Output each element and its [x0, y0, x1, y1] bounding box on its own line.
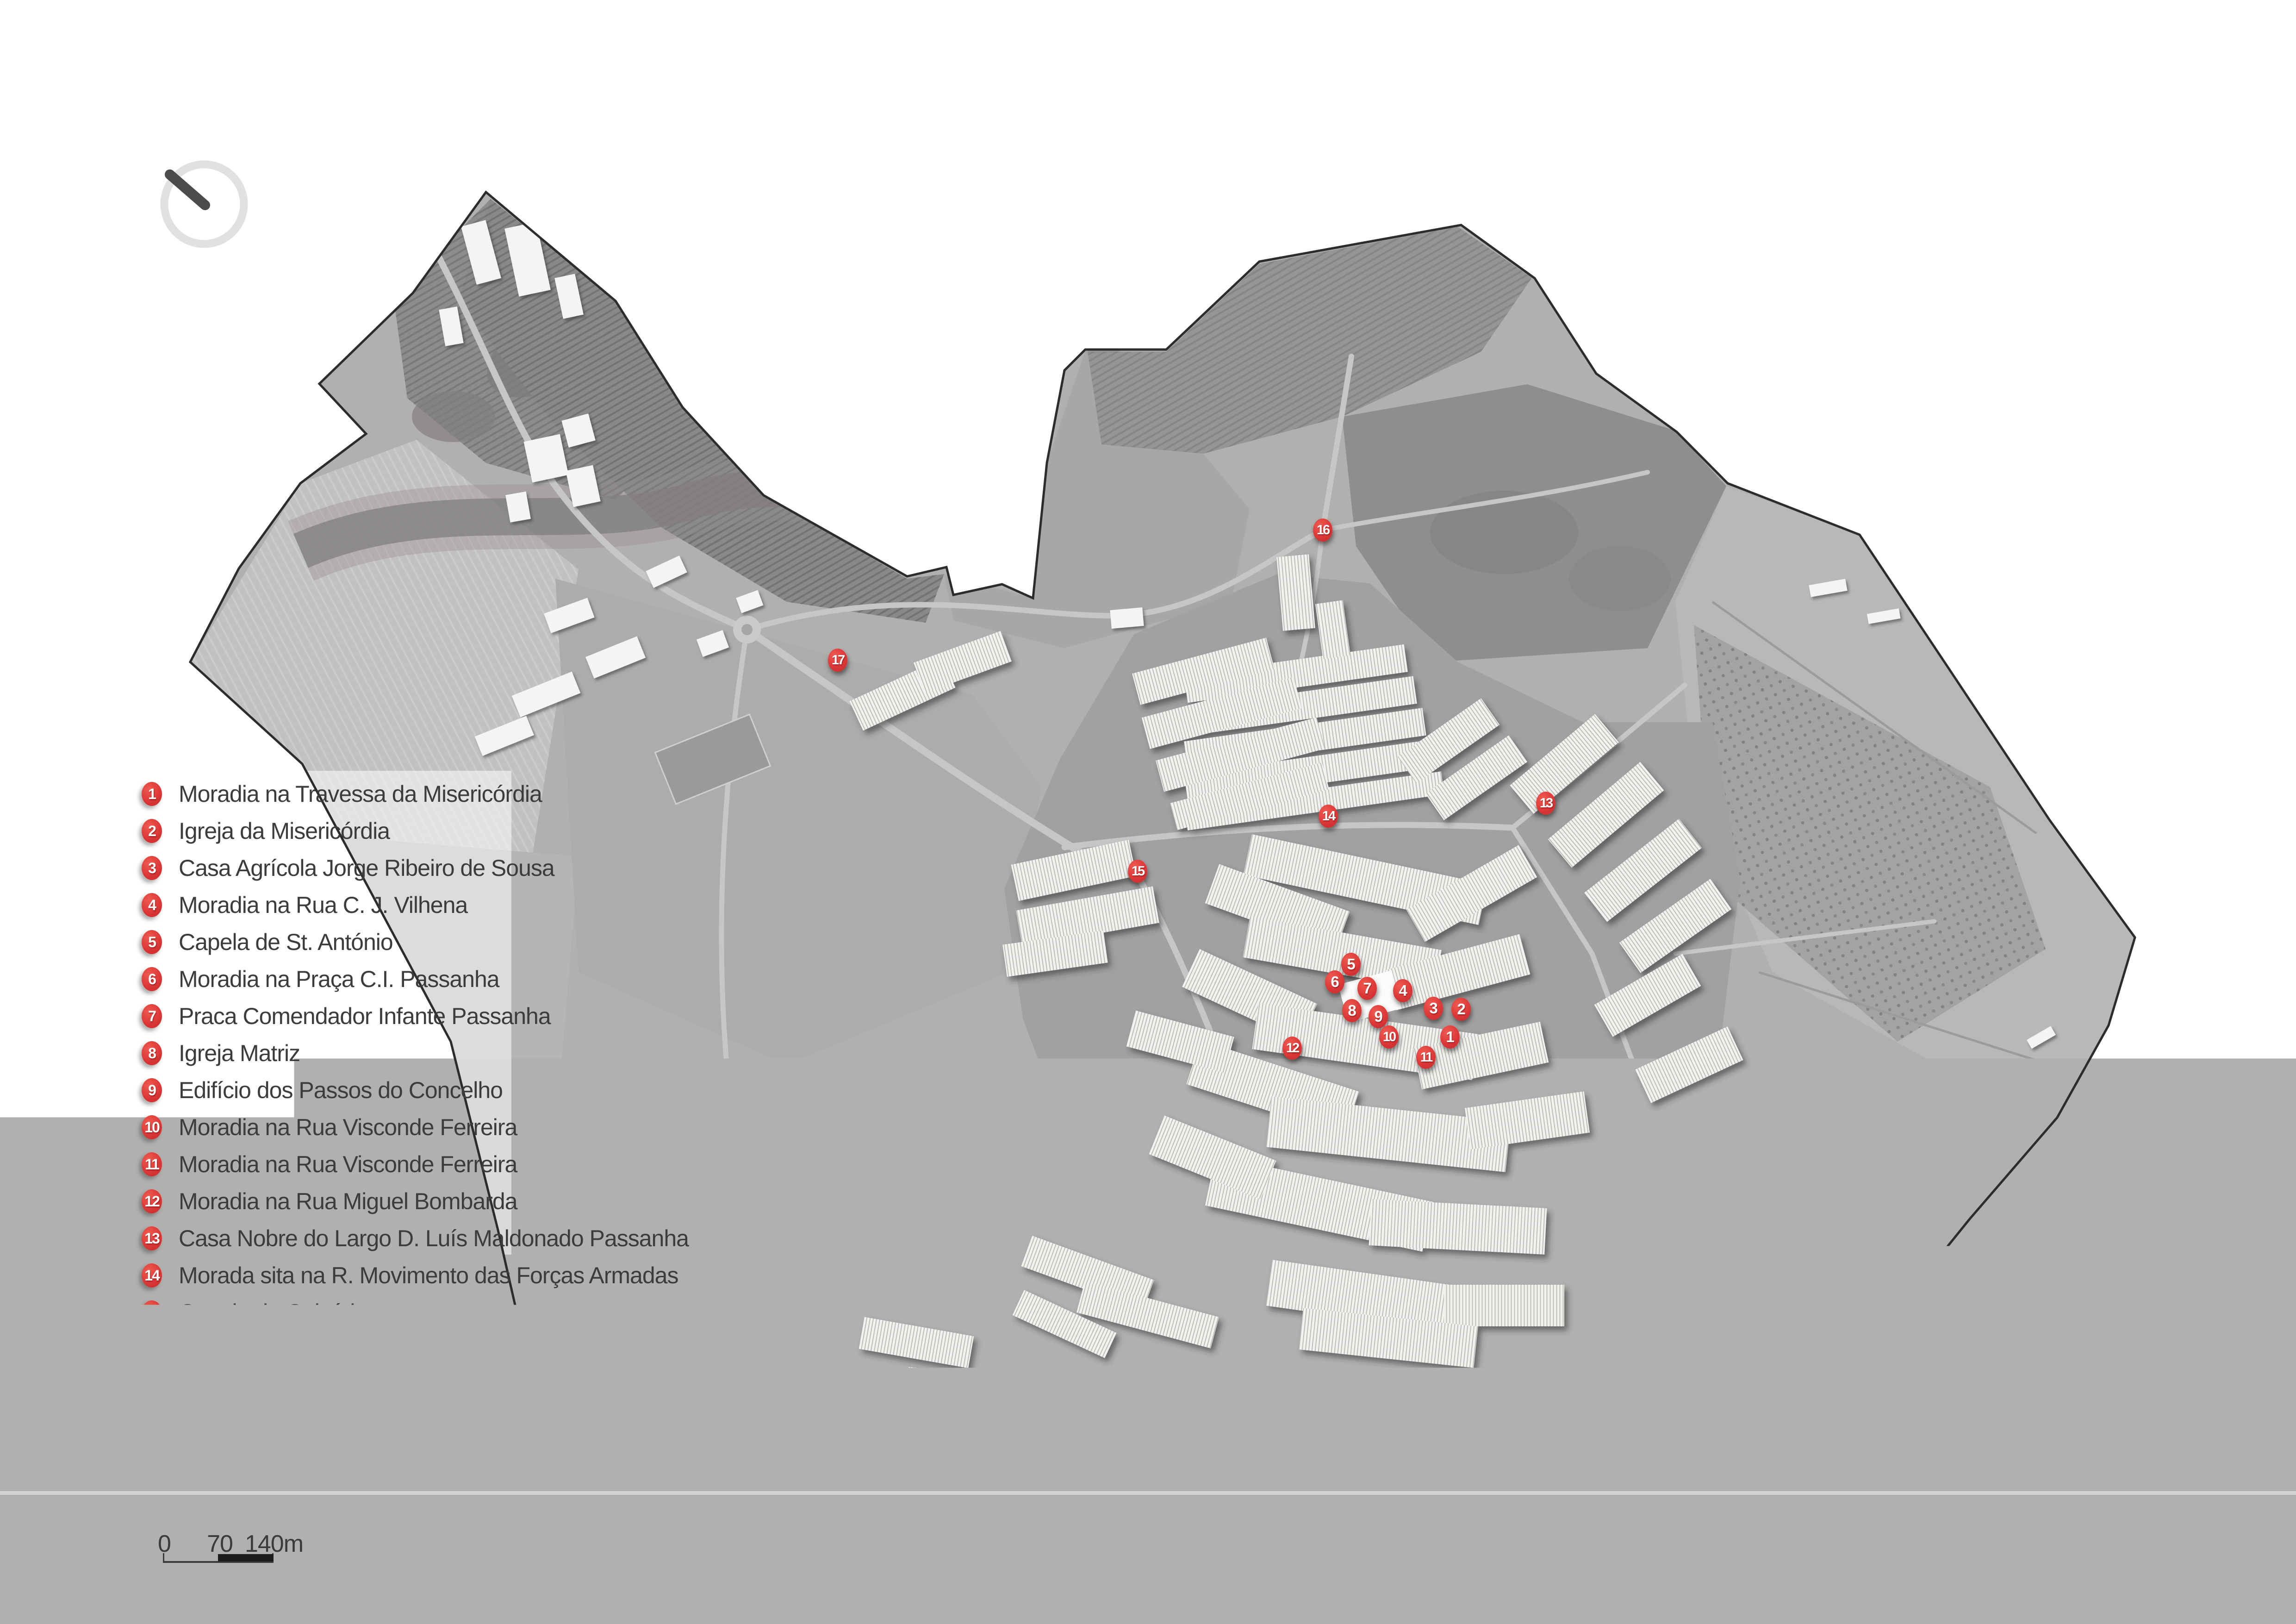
- legend-item: 13 Casa Nobre do Largo D. Luís Maldonado…: [142, 1220, 928, 1257]
- legend-badge-number: 15: [144, 1304, 159, 1321]
- legend-badge-number: 14: [144, 1267, 159, 1284]
- map-marker: 4: [1393, 979, 1412, 1002]
- legend-badge: 12: [142, 1189, 162, 1213]
- map-marker: 3: [1424, 997, 1443, 1020]
- legend-item: 17 Igreja Nossa Sr. da Conceição: [142, 1368, 928, 1405]
- map-marker: 7: [1357, 977, 1377, 1000]
- legend-badge-number: 5: [148, 934, 156, 951]
- legend-item-label: Igreja da Misericórdia: [179, 818, 390, 844]
- legend-item: 11 Moradia na Rua Visconde Ferreira: [142, 1146, 928, 1183]
- map-marker: 9: [1369, 1005, 1388, 1028]
- legend-badge: 1: [142, 782, 162, 806]
- legend-badge: 13: [142, 1226, 162, 1250]
- legend-item: 4 Moradia na Rua C. J. Vilhena: [142, 887, 928, 924]
- edificado-label: Edificado: [289, 1443, 380, 1470]
- legend-item-label: Capela de St. António: [179, 929, 393, 956]
- map-marker: 2: [1451, 998, 1471, 1021]
- map-marker: 8: [1342, 999, 1362, 1022]
- legend-badge-number: 1: [148, 786, 156, 803]
- map-marker: 13: [1536, 792, 1556, 815]
- legend-badge-number: 2: [148, 823, 156, 840]
- legend-badge: 4: [142, 893, 162, 917]
- legend-item: 3 Casa Agrícola Jorge Ribeiro de Sousa: [142, 849, 928, 887]
- legend-item-label: Moradia na Rua Miguel Bombarda: [179, 1188, 517, 1215]
- legend-badge: 9: [142, 1078, 162, 1102]
- legend-badge-number: 12: [144, 1193, 159, 1210]
- map-marker: 17: [828, 649, 847, 672]
- legend-item: 15 Capela do Calvário: [142, 1294, 928, 1331]
- legend-item-label: Morada sita na R. Movimento das Forças A…: [179, 1262, 678, 1289]
- map-marker: 15: [1128, 860, 1147, 883]
- map-marker: 10: [1379, 1025, 1399, 1049]
- legend-badge: 14: [142, 1263, 162, 1287]
- map-marker: 1: [1440, 1025, 1460, 1049]
- legend-item: 9 Edifício dos Passos do Concelho: [142, 1072, 928, 1109]
- legend-item-label: Moradia na Praça C.I. Passanha: [179, 966, 499, 993]
- legend-badge-number: 16: [144, 1341, 159, 1358]
- legend-item-label: Capela do Calvário: [179, 1299, 367, 1326]
- map-marker: 12: [1282, 1037, 1302, 1060]
- legend-item: 14 Morada sita na R. Movimento das Força…: [142, 1257, 928, 1294]
- legend-badge: 5: [142, 930, 162, 954]
- scale-bar-tick-left: [163, 1553, 164, 1563]
- map-marker: 14: [1319, 805, 1338, 828]
- north-arrow-icon: [157, 157, 259, 259]
- legend-item-label: Ermida de São Sebastião: [179, 1336, 430, 1363]
- map-marker: 11: [1416, 1046, 1436, 1069]
- legend-item: 7 Praca Comendador Infante Passanha: [142, 998, 928, 1035]
- legend-item-label: Moradia na Rua Visconde Ferreira: [179, 1114, 517, 1141]
- map-sheet: 1 Moradia na Travessa da Misericórdia 2 …: [0, 0, 2296, 1624]
- legend-item-label: Igreja Nossa Sr. da Conceição: [179, 1373, 478, 1400]
- legend-badge-number: 3: [148, 860, 156, 877]
- legend-item-label: Moradia na Rua C. J. Vilhena: [179, 892, 467, 918]
- legend-badge-number: 7: [148, 1008, 156, 1025]
- legend-badge-number: 6: [148, 971, 156, 988]
- legend-item-label: Casa Nobre do Largo D. Luís Maldonado Pa…: [179, 1225, 689, 1252]
- legend-badge: 3: [142, 856, 162, 880]
- legend-item-label: Igreja Matriz: [179, 1040, 300, 1067]
- legend-item: 16 Ermida de São Sebastião: [142, 1331, 928, 1368]
- legend-item: 5 Capela de St. António: [142, 924, 928, 961]
- legend-item-label: Casa Agrícola Jorge Ribeiro de Sousa: [179, 855, 554, 881]
- legend-badge: 10: [142, 1115, 162, 1139]
- legend-items: 1 Moradia na Travessa da Misericórdia 2 …: [142, 775, 928, 1405]
- legend-badge-number: 8: [148, 1045, 156, 1062]
- scale-label-140: 140m: [245, 1530, 303, 1558]
- legend-badge: 7: [142, 1004, 162, 1028]
- legend-item: 10 Moradia na Rua Visconde Ferreira: [142, 1109, 928, 1146]
- legend-item: 8 Igreja Matriz: [142, 1035, 928, 1072]
- legend-badge-number: 13: [144, 1230, 159, 1247]
- legend-badge-number: 9: [148, 1082, 156, 1099]
- scale-label-70: 70: [207, 1530, 233, 1558]
- legend-item: 1 Moradia na Travessa da Misericórdia: [142, 775, 928, 812]
- legend-badge: 15: [142, 1300, 162, 1324]
- legend-item-label: Moradia na Travessa da Misericórdia: [179, 781, 542, 807]
- legend-item: 6 Moradia na Praça C.I. Passanha: [142, 961, 928, 998]
- legend-badge: 17: [142, 1374, 162, 1399]
- map-marker: 16: [1313, 518, 1332, 542]
- edificado-swatch: [163, 1425, 274, 1488]
- legend-item: 2 Igreja da Misericórdia: [142, 812, 928, 849]
- legend: 1 Moradia na Travessa da Misericórdia 2 …: [142, 775, 928, 1405]
- legend-item: 12 Moradia na Rua Miguel Bombarda: [142, 1183, 928, 1220]
- legend-badge-number: 4: [148, 897, 156, 914]
- legend-badge: 2: [142, 819, 162, 843]
- legend-edificado: Edificado: [163, 1425, 380, 1488]
- legend-item-label: Moradia na Rua Visconde Ferreira: [179, 1151, 517, 1178]
- map-marker: 5: [1341, 953, 1361, 976]
- scale-bar-fill: [218, 1554, 274, 1562]
- map-marker: 6: [1325, 970, 1344, 993]
- scale-label-0: 0: [158, 1530, 171, 1558]
- legend-item-label: Edifício dos Passos do Concelho: [179, 1077, 503, 1104]
- legend-badge: 11: [142, 1152, 162, 1176]
- legend-badge-number: 17: [144, 1378, 159, 1395]
- legend-badge: 16: [142, 1337, 162, 1362]
- legend-badge-number: 10: [144, 1119, 159, 1136]
- legend-badge: 6: [142, 967, 162, 991]
- legend-item-label: Praca Comendador Infante Passanha: [179, 1003, 551, 1030]
- divider-line: [0, 1491, 2296, 1495]
- legend-badge-number: 11: [145, 1156, 159, 1173]
- legend-badge: 8: [142, 1041, 162, 1065]
